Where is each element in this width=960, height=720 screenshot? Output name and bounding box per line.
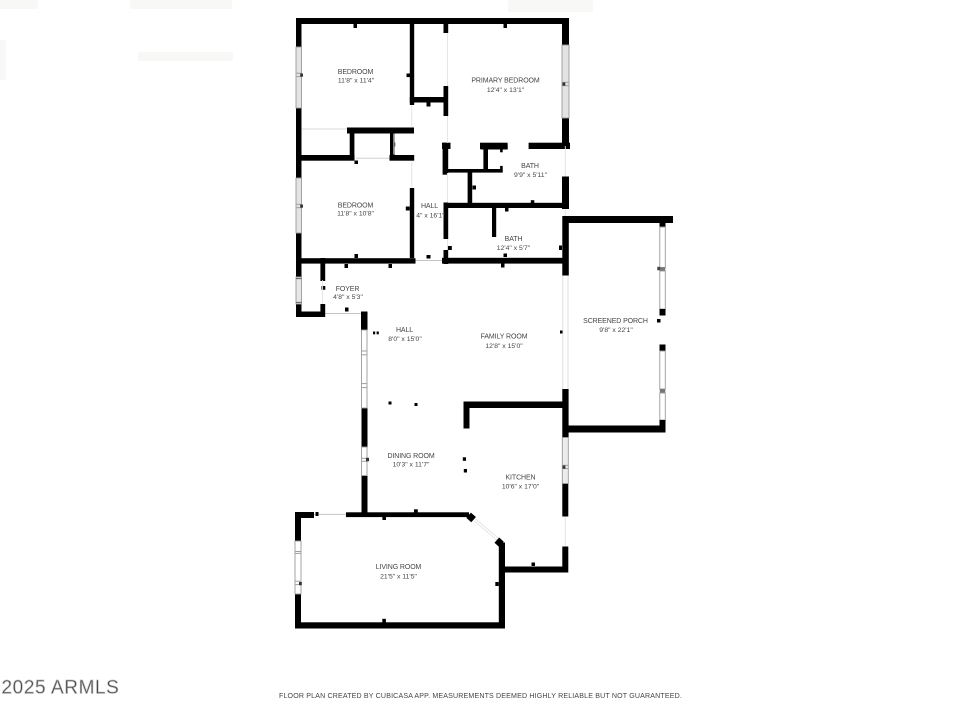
svg-text:8'0" x 15'0": 8'0" x 15'0" (388, 336, 422, 343)
svg-text:FLOOR PLAN CREATED BY CUBICASA: FLOOR PLAN CREATED BY CUBICASA APP. MEAS… (279, 693, 682, 700)
svg-text:12'8" x 15'0": 12'8" x 15'0" (485, 343, 523, 350)
svg-text:BEDROOM: BEDROOM (338, 69, 374, 76)
svg-text:DINING ROOM: DINING ROOM (387, 453, 434, 460)
svg-text:LIVING ROOM: LIVING ROOM (376, 564, 422, 571)
svg-text:12'4" x 13'1": 12'4" x 13'1" (487, 87, 525, 94)
svg-text:2025 ARMLS: 2025 ARMLS (2, 678, 120, 699)
svg-text:BATH: BATH (505, 236, 523, 243)
svg-text:10'3" x 11'7": 10'3" x 11'7" (393, 462, 430, 469)
svg-text:12'4" x 5'7": 12'4" x 5'7" (497, 245, 531, 252)
svg-text:11'8" x 10'8": 11'8" x 10'8" (337, 211, 374, 218)
svg-text:21'5" x 11'5": 21'5" x 11'5" (380, 573, 417, 580)
svg-text:FOYER: FOYER (336, 286, 360, 293)
svg-text:4'8" x 5'3": 4'8" x 5'3" (333, 294, 363, 301)
svg-text:PRIMARY BEDROOM: PRIMARY BEDROOM (471, 78, 540, 85)
svg-text:KITCHEN: KITCHEN (505, 474, 535, 481)
svg-text:FAMILY ROOM: FAMILY ROOM (481, 334, 528, 341)
svg-text:HALL: HALL (396, 327, 413, 334)
svg-text:10'6" x 17'0": 10'6" x 17'0" (502, 483, 540, 490)
svg-text:4" x 16'1": 4" x 16'1" (416, 213, 445, 220)
svg-text:11'8" x 11'4": 11'8" x 11'4" (338, 78, 375, 85)
svg-text:9'9" x 5'11": 9'9" x 5'11" (514, 172, 548, 179)
svg-text:BATH: BATH (521, 163, 539, 170)
svg-text:HALL: HALL (421, 203, 438, 210)
svg-text:SCREENED PORCH: SCREENED PORCH (583, 318, 648, 325)
svg-text:BEDROOM: BEDROOM (338, 203, 374, 210)
svg-text:9'8" x 22'1": 9'8" x 22'1" (599, 327, 633, 334)
